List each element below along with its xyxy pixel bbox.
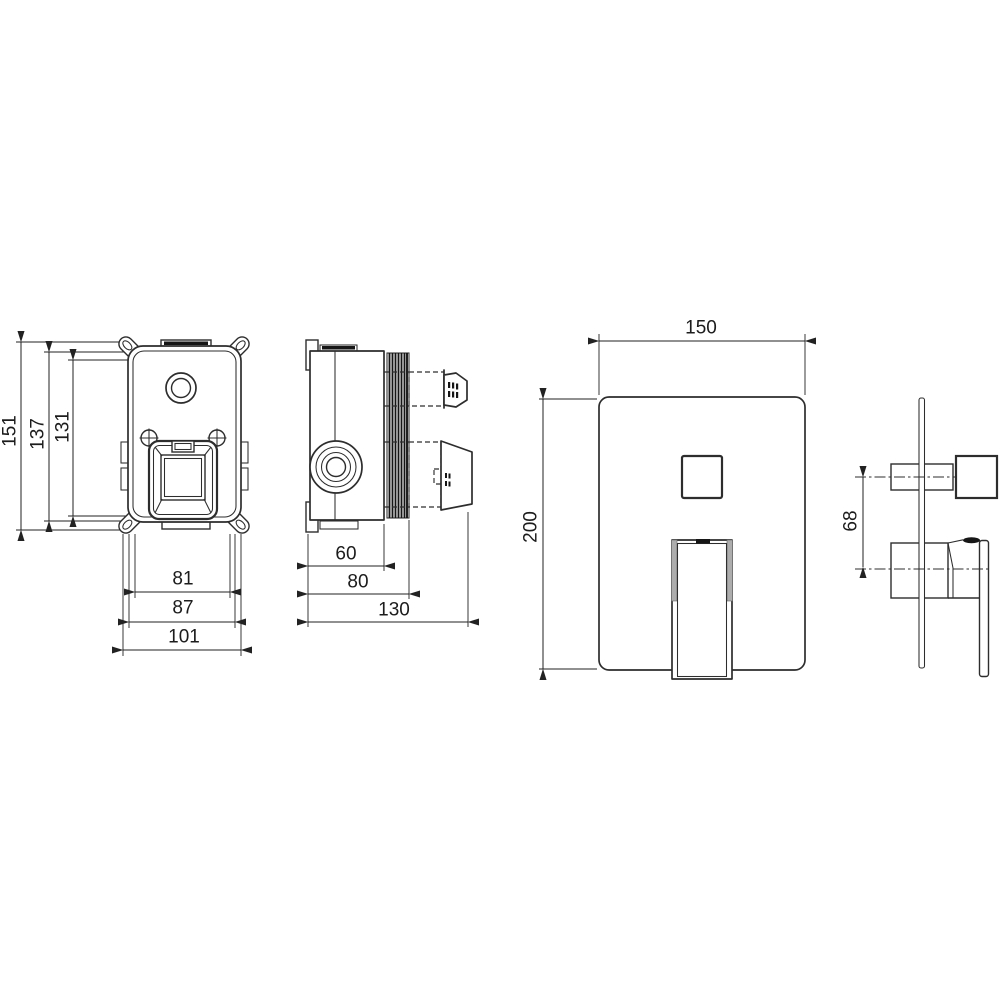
side-tab-left-lower [121,468,128,490]
handle-outline [672,540,732,679]
dim-label-68: 68 [841,510,862,531]
handle-side-band-left [672,540,678,601]
dim-label-131: 131 [53,411,74,443]
handle-grip-side [441,441,472,510]
box-side-part [306,340,472,532]
technical-drawing: 151 137 131 81 87 101 [0,0,1000,1000]
handle-grip-bar [980,541,989,677]
side-tab-left-upper [121,442,128,463]
dim-label-130: 130 [378,600,410,621]
dim-label-137: 137 [28,418,49,450]
top-port-outer [166,373,196,403]
dim-label-60: 60 [335,544,356,565]
drawing-canvas: 151 137 131 81 87 101 [0,0,1000,1000]
handle-joint-accent [963,537,980,543]
trim-plate-edge [919,398,925,668]
dim-label-81: 81 [172,569,193,590]
plate-side-dimensions: 68 [841,477,864,567]
box-front-part [116,334,252,536]
handle-side-band-right [727,540,733,601]
dim-label-150: 150 [685,318,717,339]
box-top-lug-dark [164,342,208,346]
plate-front-part [599,397,805,679]
dim-label-87: 87 [172,598,193,619]
lever-handle-front [672,539,733,679]
plate-side-part [855,398,997,677]
handle-top-mark [696,539,710,544]
dim-label-101: 101 [168,627,200,648]
ribbed-seal-band [387,353,409,518]
view-plate-side: 68 [841,398,998,677]
diverter-knob-side [444,370,467,408]
side-tab-right-lower [241,468,248,490]
side-tab-right-upper [241,442,248,463]
view-box-front: 151 137 131 81 87 101 [0,334,252,656]
diverter-button [682,456,722,498]
dim-label-80: 80 [347,572,368,593]
view-plate-front: 150 200 [521,318,806,680]
dim-label-200: 200 [521,511,542,543]
box-side-body [310,351,384,520]
view-box-side: 60 80 130 [306,340,472,627]
bottom-lug-side [320,521,358,529]
dim-label-151: 151 [0,415,21,447]
diverter-knob-square [956,456,997,498]
cartridge-recess [149,441,217,519]
side-port-boss [310,441,362,493]
handle-neck [948,543,953,598]
